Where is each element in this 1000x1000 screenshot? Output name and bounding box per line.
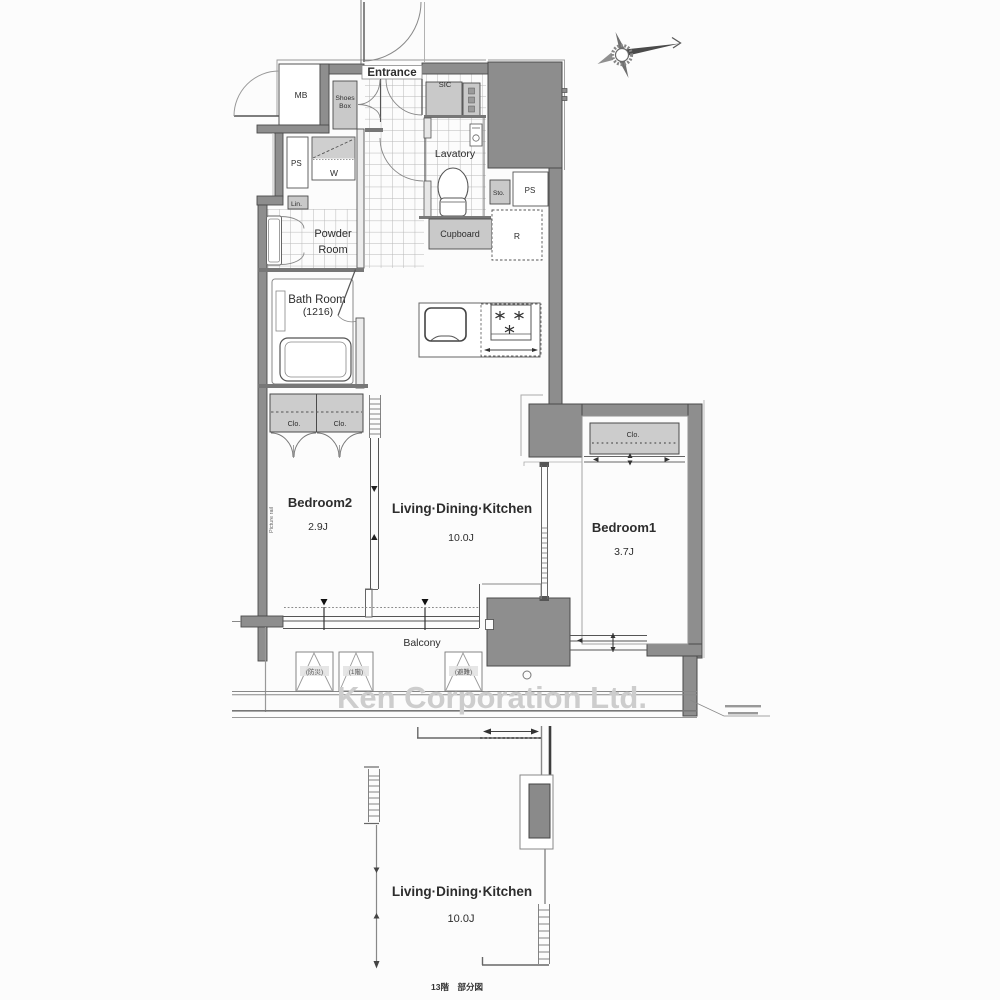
- svg-text:Sto.: Sto.: [493, 190, 505, 197]
- svg-text:Lavatory: Lavatory: [435, 148, 476, 160]
- svg-text:Room: Room: [318, 244, 347, 256]
- svg-text:W: W: [330, 168, 338, 178]
- svg-text:Bath Room: Bath Room: [288, 294, 346, 306]
- svg-text:Clo.: Clo.: [334, 419, 347, 428]
- svg-text:Powder: Powder: [314, 228, 352, 240]
- svg-text:Bedroom2: Bedroom2: [288, 495, 352, 510]
- svg-text:Entrance: Entrance: [367, 67, 416, 79]
- svg-text:(1階): (1階): [349, 667, 363, 676]
- svg-text:MB: MB: [295, 90, 308, 100]
- svg-text:Shoes: Shoes: [335, 95, 355, 102]
- svg-text:Picture rail: Picture rail: [269, 507, 275, 533]
- svg-text:PS: PS: [525, 186, 536, 195]
- svg-text:SIC: SIC: [439, 80, 452, 89]
- svg-text:10.0J: 10.0J: [448, 913, 475, 925]
- svg-text:10.0J: 10.0J: [448, 532, 474, 544]
- svg-text:R: R: [514, 231, 520, 241]
- svg-text:(避難): (避難): [455, 667, 472, 676]
- svg-text:Bedroom1: Bedroom1: [592, 520, 656, 535]
- svg-text:Box: Box: [339, 103, 351, 110]
- svg-text:Ken Corporation Ltd.: Ken Corporation Ltd.: [337, 680, 647, 715]
- svg-text:Living·Dining·Kitchen: Living·Dining·Kitchen: [392, 501, 532, 516]
- svg-text:3.7J: 3.7J: [614, 546, 634, 558]
- svg-text:PS: PS: [291, 159, 302, 168]
- svg-text:(防災): (防災): [306, 667, 323, 676]
- svg-text:2.9J: 2.9J: [308, 521, 328, 533]
- svg-text:Clo.: Clo.: [288, 419, 301, 428]
- svg-text:13階 部分図: 13階 部分図: [431, 982, 483, 992]
- svg-text:Cupboard: Cupboard: [440, 229, 480, 239]
- svg-text:Clo.: Clo.: [627, 430, 640, 439]
- svg-text:Lin.: Lin.: [291, 201, 302, 208]
- svg-text:Living·Dining·Kitchen: Living·Dining·Kitchen: [392, 884, 532, 899]
- svg-text:(1216): (1216): [303, 306, 333, 318]
- svg-text:Balcony: Balcony: [403, 637, 441, 649]
